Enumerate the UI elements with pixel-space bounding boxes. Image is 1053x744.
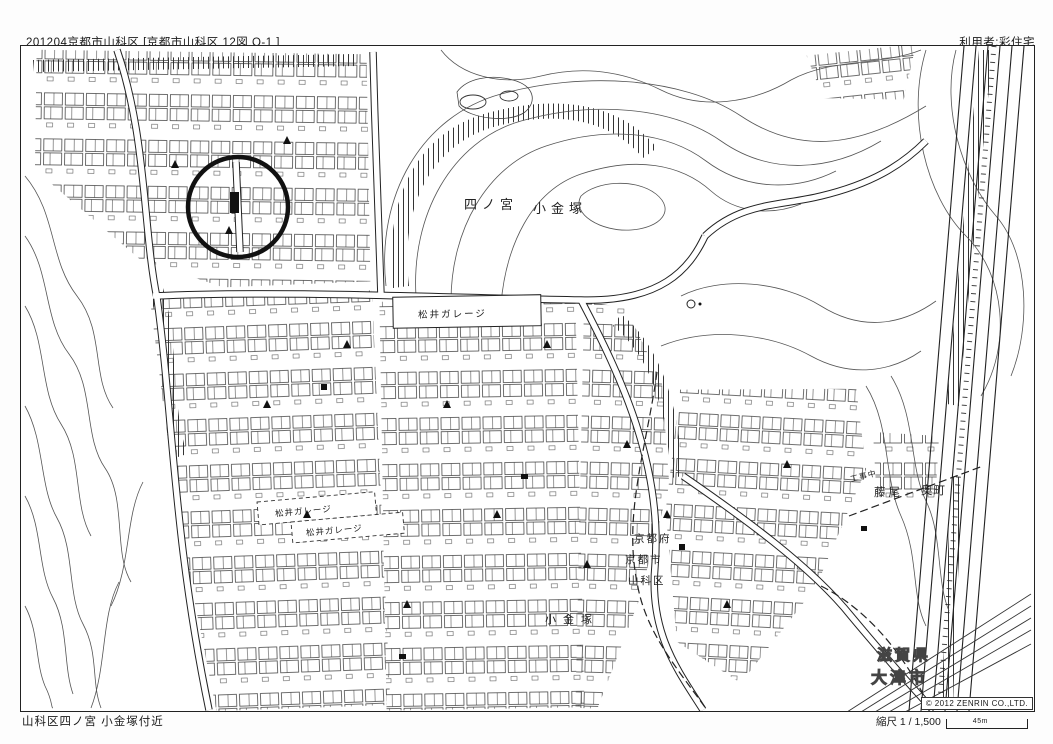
hill-label-shinomiya: 四ノ宮 (464, 197, 518, 212)
map-canvas: 松井ガレージ 松井ガレージ 松井ガレージ (21, 46, 1034, 711)
map-area-name: 山科区四ノ宮 小金塚付近 (22, 713, 164, 729)
scale-label: 縮尺 1 / 1,500 (876, 714, 941, 729)
scale-group: 縮尺 1 / 1,500 45m (876, 714, 1028, 729)
street-label-koganezuka: 小金塚 (545, 612, 599, 626)
scale-bar: 45m (946, 719, 1028, 729)
scanned-map-page: 201204京都市山科区 [京都市山科区 12図 O-1 ] 利用者:彩住宅 (0, 0, 1053, 744)
district-label-fujio: 藤尾 (874, 486, 903, 499)
shiga-pref-label: 滋賀県 (877, 646, 931, 664)
garage-main-label: 松井ガレージ (418, 308, 487, 321)
scale-distance-label: 45m (973, 718, 988, 725)
map-frame: 松井ガレージ 松井ガレージ 松井ガレージ (20, 45, 1035, 712)
otsu-city-label: 大津市 (871, 668, 928, 687)
hill-label-koganezuka: 小金塚 (533, 201, 587, 216)
boundary-label-kyotoshi: 京都市 (625, 553, 663, 566)
garage-building-main: 松井ガレージ (393, 295, 542, 329)
copyright-box: © 2012 ZENRIN CO.,LTD. (921, 697, 1033, 710)
boundary-label-kyotofu: 京都府 (634, 532, 672, 545)
district-label-okumachi: 奥町 (921, 483, 946, 497)
boundary-label-yamashinaku: 山科区 (628, 574, 666, 587)
bottom-right-roads (847, 594, 1031, 711)
